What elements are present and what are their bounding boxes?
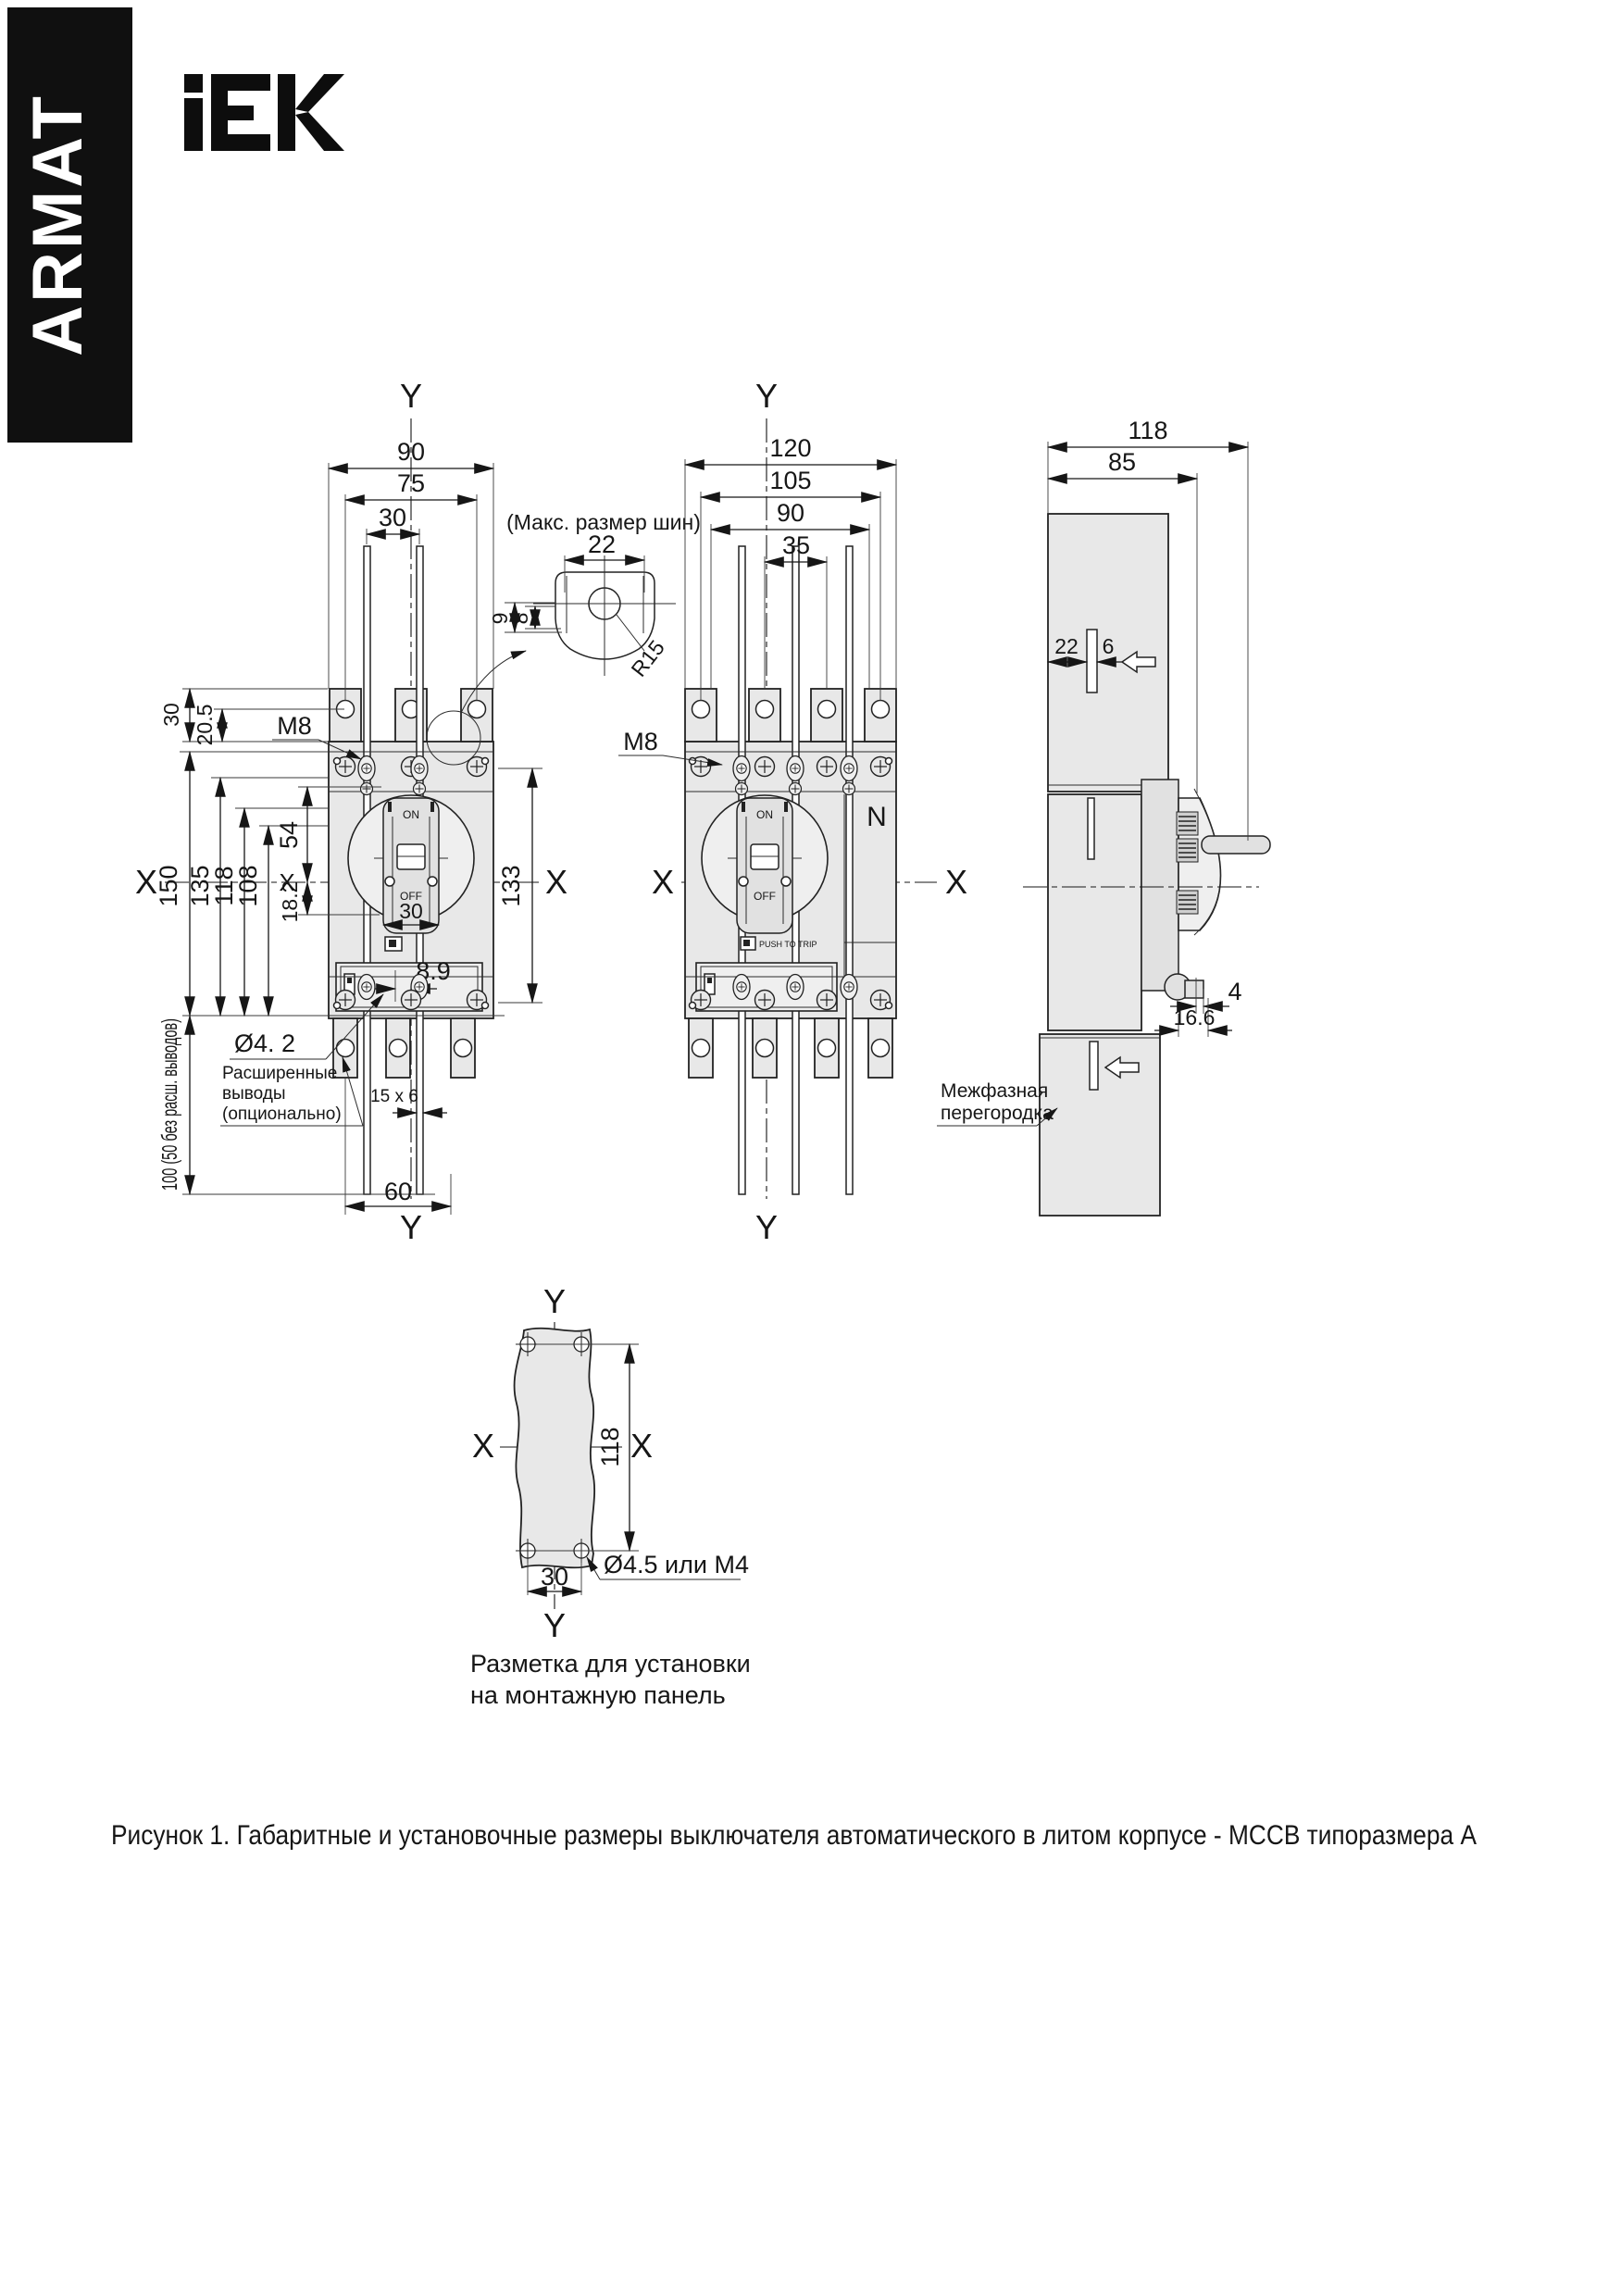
- front-cover-side: [1141, 780, 1178, 991]
- small-screw-icon: [361, 783, 373, 795]
- dim-depth-total: 118: [1128, 417, 1167, 444]
- dim-width-bars: 90: [777, 499, 804, 527]
- dim-tab-height2: 20.5: [193, 705, 217, 746]
- dim-slot-width: 6: [1103, 634, 1115, 658]
- ext-terminals-label-1: Расширенные: [222, 1064, 337, 1083]
- axis-label-x-left: X: [652, 863, 674, 901]
- armat-banner: ARMAT: [7, 7, 132, 443]
- panel-caption-2: на монтажную панель: [470, 1681, 726, 1709]
- detail-dim-8: 8: [508, 613, 532, 625]
- technical-drawing: ARMAT Y Y X X X: [0, 0, 1621, 2296]
- dim-tab-height: 30: [159, 703, 183, 727]
- dim-depth-body: 85: [1108, 448, 1136, 476]
- axis-label-y-bottom: Y: [400, 1208, 422, 1246]
- figure-caption: Рисунок 1. Габаритные и установочные раз…: [111, 1820, 1477, 1851]
- ext-terminals-label-3: (опционально): [222, 1104, 342, 1124]
- bar-lug-icon: [411, 756, 428, 781]
- busbar-detail: (Макс. размер шин) 22 9 8 R15: [488, 510, 701, 681]
- dim-height-108: 108: [234, 865, 262, 906]
- axis-label-x-right: X: [630, 1427, 653, 1465]
- interphase-barrier: [1040, 1034, 1160, 1216]
- toggle-handle-side: [1202, 836, 1270, 854]
- terminal-screw-icon: [402, 991, 421, 1010]
- dim-hole-spacing-v: 118: [596, 1427, 624, 1466]
- mounting-panel-view: Y Y X X 118 30 Ø4.5 или М4 Разметка для …: [470, 1282, 751, 1709]
- iek-logo-icon: [184, 74, 344, 151]
- dim-width-holes: 75: [397, 469, 425, 497]
- axis-label-x-left: X: [472, 1427, 494, 1465]
- ext-terminals-label-2: выводы: [222, 1084, 286, 1104]
- dim-width-holes: 105: [769, 467, 811, 494]
- dim-toggle-width: 30: [399, 899, 423, 923]
- axis-label-y-bottom: Y: [543, 1606, 566, 1644]
- busbar-slot: [1087, 630, 1097, 693]
- armat-logo-text: ARMAT: [19, 94, 97, 356]
- dim-pole-span: 60: [384, 1178, 412, 1205]
- dim-height-54: 54: [275, 821, 303, 849]
- axis-label-y-top: Y: [400, 377, 422, 415]
- extended-tab-hole: [337, 1040, 355, 1057]
- axis-label-x-right: X: [545, 863, 567, 901]
- on-label: ON: [756, 808, 773, 821]
- barrier-label-2: перегородка: [941, 1103, 1054, 1124]
- dim-step: 4: [1228, 978, 1241, 1005]
- dim-width-total: 120: [769, 434, 811, 462]
- dim-pitch: 35: [782, 531, 810, 559]
- accessory-rib-icon: [1177, 812, 1198, 835]
- small-screw-icon: [414, 783, 426, 795]
- axis-label-y-top: Y: [543, 1282, 566, 1320]
- accessory-rib-icon: [1177, 839, 1198, 862]
- dim-bar-section: 15 x 6: [370, 1087, 418, 1106]
- panel-caption-1: Разметка для установки: [470, 1650, 751, 1678]
- bar-lug-icon: [358, 756, 375, 781]
- dim-step2: 16.6: [1174, 1005, 1216, 1029]
- panel-hole-spec: Ø4.5 или М4: [604, 1551, 749, 1578]
- detail-dim-width: 22: [588, 530, 616, 558]
- dim-height-182: 18.2: [278, 881, 302, 923]
- dim-height-right: 133: [497, 865, 525, 906]
- front-view-4p: Y Y X X ON OFF PUSH TO: [618, 377, 967, 1246]
- bar-lug-icon: [358, 975, 375, 1000]
- dim-width-bars: 30: [379, 504, 406, 531]
- neutral-pole-label: N: [867, 802, 887, 832]
- panel-plate: [515, 1329, 595, 1568]
- dim-hole-label: Ø4. 2: [234, 1029, 295, 1057]
- on-label: ON: [403, 808, 419, 821]
- thread-label: M8: [623, 728, 658, 755]
- dim-bars-height: 100 (50 без расш. выводов): [157, 1018, 181, 1191]
- front-view-3p: Y Y X X X ON: [135, 377, 567, 1246]
- extended-tab-hole: [390, 1040, 407, 1057]
- axis-label-y-top: Y: [755, 377, 778, 415]
- busbar: [846, 546, 853, 1194]
- thread-label: M8: [277, 712, 312, 740]
- side-view: 118 85 22 6 4 16.6 Межфазная перегородка: [937, 417, 1270, 1216]
- dim-width-total: 90: [397, 438, 425, 466]
- axis-label-x-right: X: [945, 863, 967, 901]
- axis-label-y-bottom: Y: [755, 1208, 778, 1246]
- dim-height-total: 150: [155, 865, 182, 906]
- tab-hole: [468, 701, 486, 718]
- accessory-rib-icon: [1177, 891, 1198, 914]
- off-label: OFF: [754, 890, 776, 903]
- barrier-label-1: Межфазная: [941, 1080, 1048, 1102]
- drawing-page: ARMAT Y Y X X X: [0, 0, 1621, 2296]
- dim-hole-spacing-h: 30: [541, 1563, 568, 1591]
- dim-slot-offset: 22: [1054, 634, 1079, 658]
- push-to-trip-label: PUSH TO TRIP: [759, 940, 817, 949]
- extended-tab-hole: [455, 1040, 472, 1057]
